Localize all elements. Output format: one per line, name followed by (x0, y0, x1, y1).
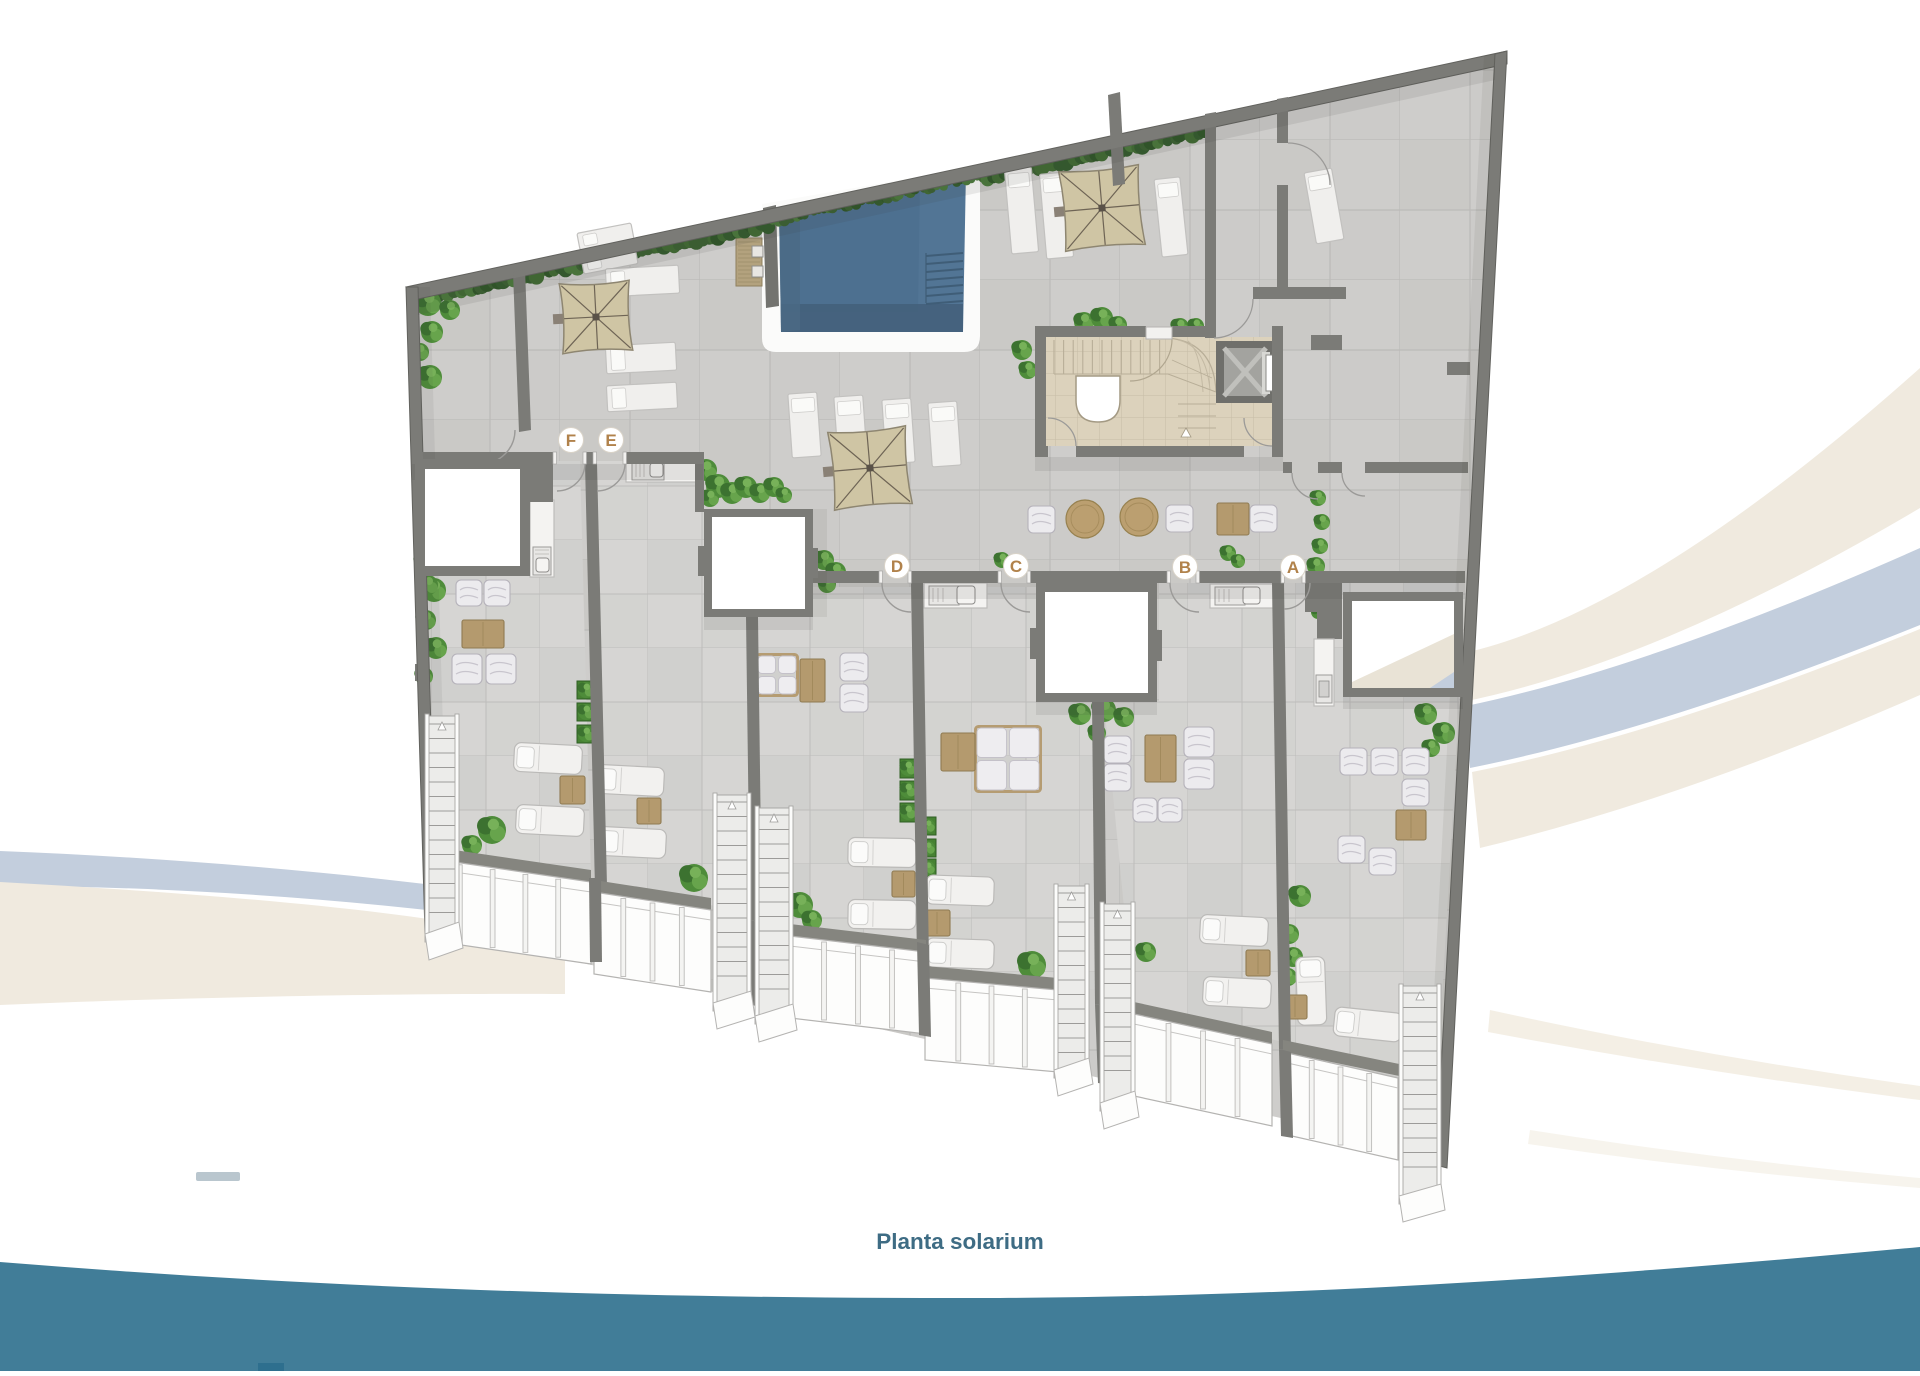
svg-text:B: B (1179, 558, 1191, 577)
svg-text:D: D (891, 557, 903, 576)
svg-text:E: E (605, 431, 616, 450)
svg-text:C: C (1010, 557, 1022, 576)
svg-text:F: F (566, 431, 576, 450)
svg-text:A: A (1287, 558, 1299, 577)
svg-text:Planta solarium: Planta solarium (876, 1229, 1044, 1254)
